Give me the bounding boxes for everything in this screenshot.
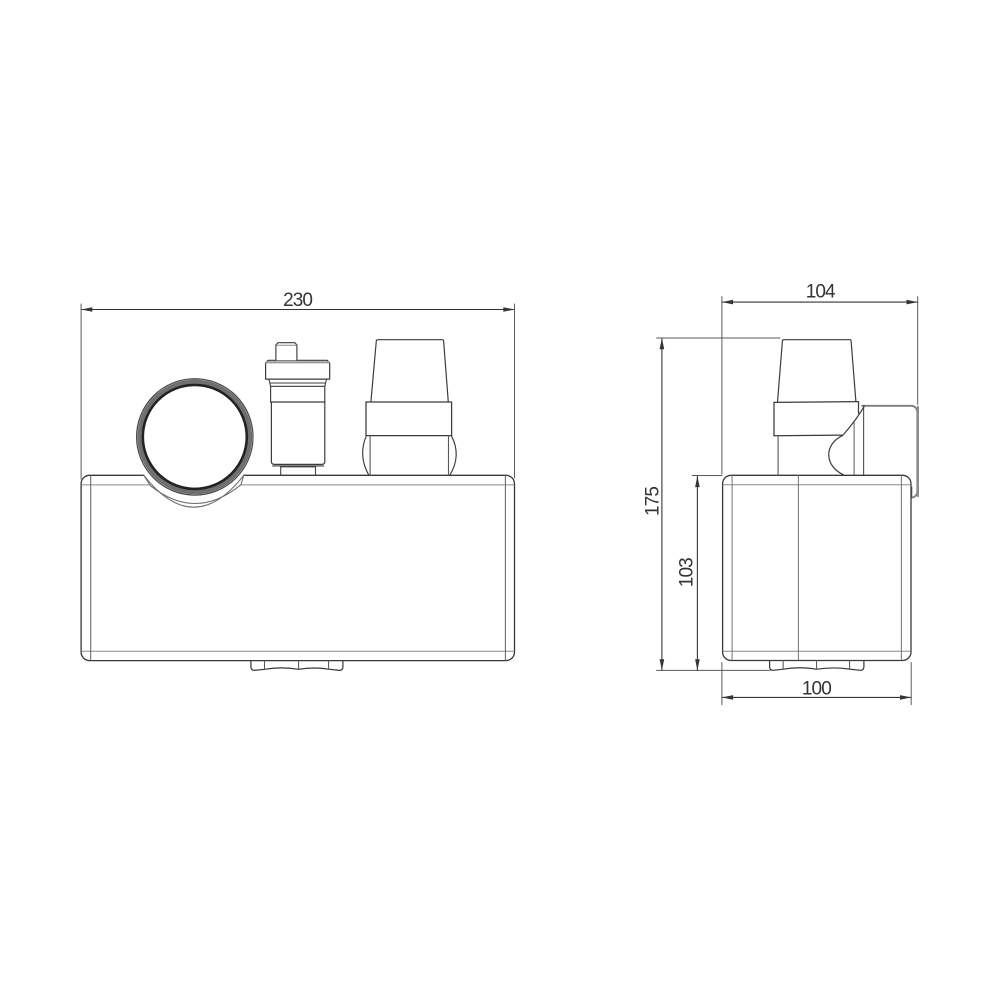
svg-text:175: 175: [642, 487, 663, 516]
svg-text:230: 230: [283, 290, 312, 311]
svg-text:103: 103: [677, 558, 698, 587]
svg-text:100: 100: [802, 679, 831, 700]
svg-text:104: 104: [806, 281, 836, 302]
